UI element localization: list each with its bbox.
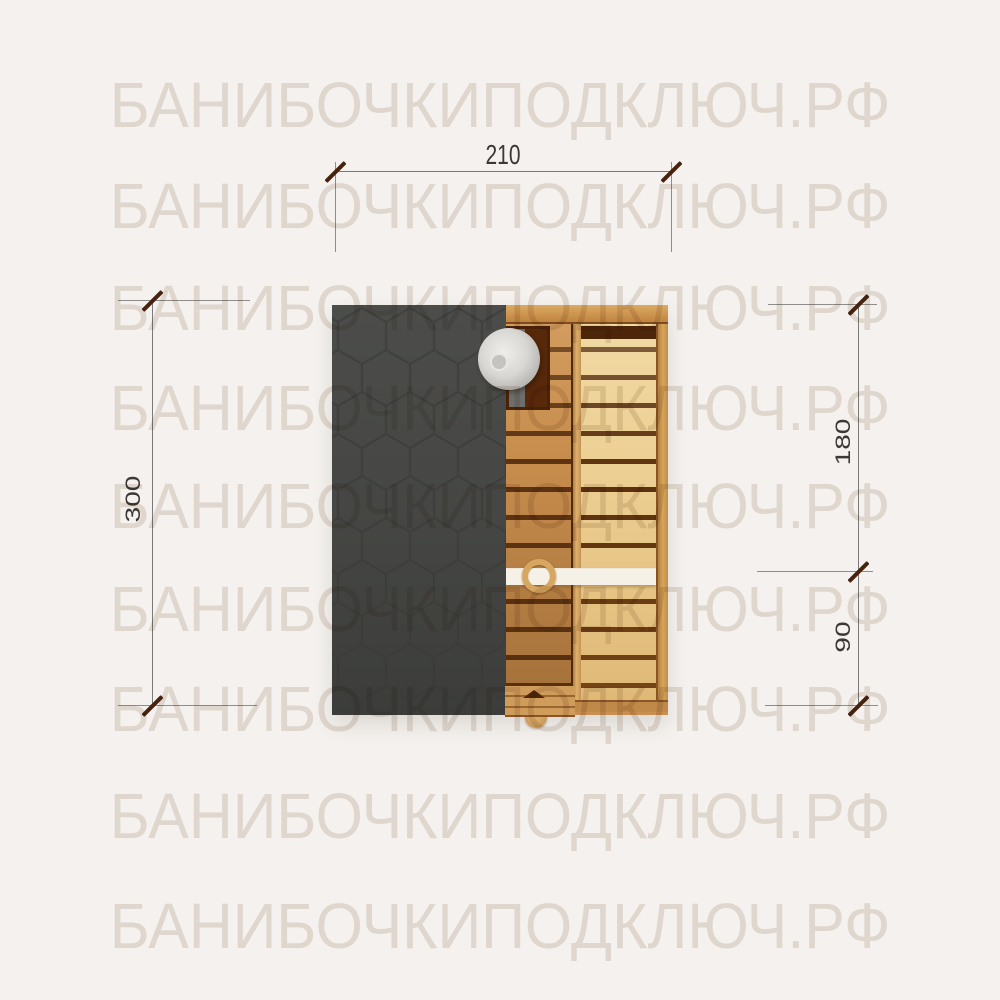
dimension-line-top [335, 171, 672, 172]
page-background: { "watermark": { "text": "БАНИБОЧКИПОДКЛ… [0, 0, 1000, 1000]
watermark-text: БАНИБОЧКИПОДКЛЮЧ.РФ [25, 891, 975, 961]
watermark-text: БАНИБОЧКИПОДКЛЮЧ.РФ [25, 70, 975, 140]
extension-line-top-right [671, 162, 672, 252]
partition-rail [573, 324, 581, 705]
flue-pipe-icon [478, 328, 540, 390]
interior-wood-section [506, 305, 668, 715]
right-wall-frame [656, 305, 668, 712]
extension-line-left-top [118, 300, 250, 301]
entrance-door [505, 686, 575, 717]
extension-line-left-bottom [118, 705, 257, 706]
flue-cap-icon [490, 353, 508, 371]
planks-right-top-gap [581, 326, 656, 339]
dimension-label-entry-room: 90 [833, 602, 853, 672]
dimension-label-length: 300 [123, 464, 143, 534]
watermark-text: БАНИБОЧКИПОДКЛЮЧ.РФ [25, 781, 975, 851]
dimension-line-right [858, 303, 859, 708]
dimension-label-width: 210 [478, 142, 528, 168]
extension-line-top-left [335, 162, 336, 252]
watermark-text: БАНИБОЧКИПОДКЛЮЧ.РФ [25, 171, 975, 241]
sauna-top-view-plan [332, 305, 668, 715]
dimension-label-steam-room: 180 [833, 407, 853, 477]
top-wall [506, 305, 668, 324]
inner-door-ring-handle-icon [522, 559, 556, 593]
planks-right-shading [581, 324, 656, 705]
dimension-line-left [152, 299, 153, 708]
